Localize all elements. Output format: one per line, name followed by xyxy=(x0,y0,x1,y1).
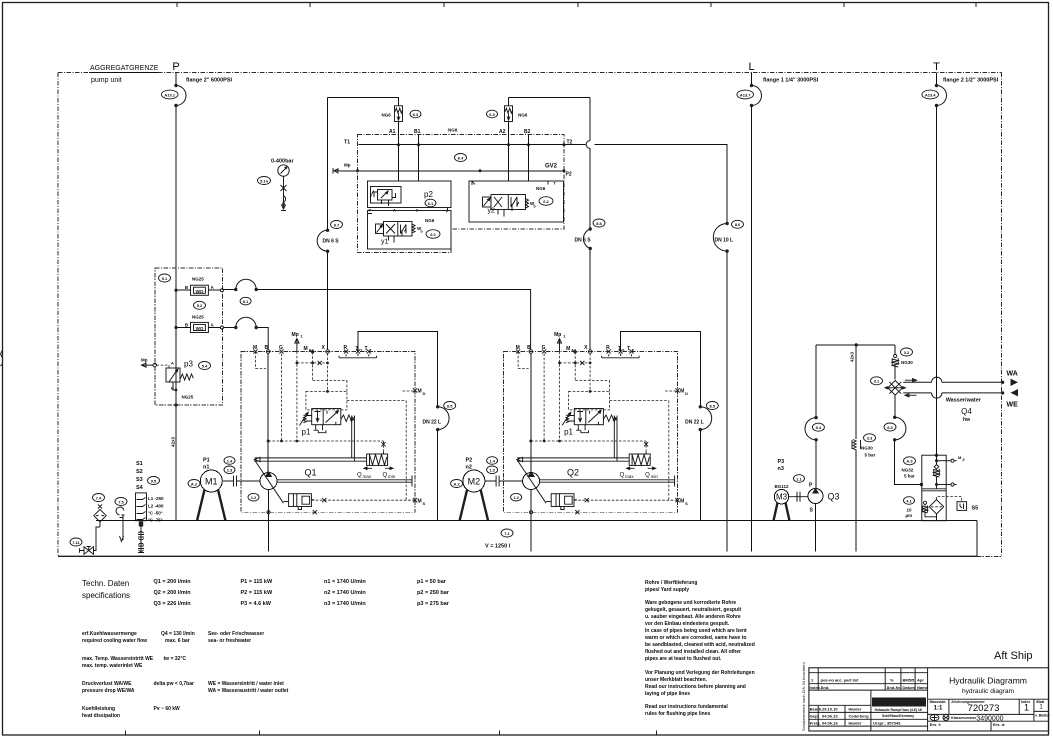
svg-text:Gebaude Rumpf bau (4.6) 18: Gebaude Rumpf bau (4.6) 18 xyxy=(875,708,922,712)
svg-text:p3 = 275 bar: p3 = 275 bar xyxy=(417,601,450,607)
svg-text:NG30: NG30 xyxy=(861,446,873,451)
svg-text:Ers. d:: Ers. d: xyxy=(993,722,1005,727)
svg-text:Q2: Q2 xyxy=(567,468,579,478)
svg-text:S5: S5 xyxy=(972,506,979,512)
svg-text:P2: P2 xyxy=(566,172,572,178)
svg-text:10: 10 xyxy=(907,508,913,513)
svg-text:Q1: Q1 xyxy=(305,468,317,478)
svg-text:warm or which are corroded, sa: warm or which are corroded, same have to xyxy=(644,635,746,641)
svg-text:Ware gebogene und korrodierte: Ware gebogene und korrodierte Rohre xyxy=(645,600,736,606)
svg-text:max. temp. waterinlet WE: max. temp. waterinlet WE xyxy=(82,663,143,669)
svg-text:1:1: 1:1 xyxy=(934,706,943,712)
svg-text:S3: S3 xyxy=(136,477,143,483)
svg-text:gekugelt, gesauert, neutralisi: gekugelt, gesauert, neutralisiert, gespu… xyxy=(645,607,741,613)
svg-text:y1: y1 xyxy=(381,239,389,246)
svg-text:p2: p2 xyxy=(424,190,433,199)
svg-text:pipes/ Yard supply: pipes/ Yard supply xyxy=(645,587,689,593)
svg-text:A13.4: A13.4 xyxy=(925,92,936,97)
svg-text:Read our instructions fundamen: Read our instructions fundamental xyxy=(645,704,728,710)
svg-text:be sandblasted, cleaned with a: be sandblasted, cleaned with acid, neutr… xyxy=(645,642,755,648)
svg-text:y2: y2 xyxy=(488,208,496,215)
svg-text:GV2: GV2 xyxy=(545,164,558,170)
svg-text:M3: M3 xyxy=(776,493,788,502)
svg-text:Hydraulik Diagramm: Hydraulik Diagramm xyxy=(949,676,1027,686)
svg-text:pressure drop WE/WA: pressure drop WE/WA xyxy=(82,688,135,694)
svg-text:n2: n2 xyxy=(466,465,472,471)
svg-text:NG30: NG30 xyxy=(901,360,913,365)
svg-text:42x3: 42x3 xyxy=(171,436,176,447)
svg-text:NG25: NG25 xyxy=(192,277,204,282)
svg-text:laying of pipe lines: laying of pipe lines xyxy=(645,691,690,697)
svg-text:P1 = 115 kW: P1 = 115 kW xyxy=(241,579,273,585)
svg-text:6.3: 6.3 xyxy=(489,112,495,117)
svg-text:erf.Kuehlwassermenge: erf.Kuehlwassermenge xyxy=(82,631,137,637)
svg-text:flange 2 1/2" 3000PSI: flange 2 1/2" 3000PSI xyxy=(943,78,999,84)
svg-text:Harder: Harder xyxy=(849,707,862,712)
svg-text:Q2 = 200 l/min: Q2 = 200 l/min xyxy=(154,590,192,596)
svg-text:NG25: NG25 xyxy=(192,314,204,319)
svg-text:6.3: 6.3 xyxy=(413,112,419,117)
svg-text:M1: M1 xyxy=(205,477,218,487)
svg-text:Q3 = 226 l/min: Q3 = 226 l/min xyxy=(154,601,192,607)
svg-text:7.11: 7.11 xyxy=(72,540,80,545)
svg-text:9.5: 9.5 xyxy=(151,478,157,483)
svg-text:L: L xyxy=(748,61,754,73)
svg-text:8.4: 8.4 xyxy=(816,425,822,430)
svg-text:n1 = 1740 U/min: n1 = 1740 U/min xyxy=(324,579,366,585)
svg-text:M2: M2 xyxy=(468,477,481,487)
svg-text:A13.7: A13.7 xyxy=(740,92,751,97)
svg-text:µm: µm xyxy=(906,513,913,518)
svg-text:A: A xyxy=(393,208,396,213)
svg-text:hydraulic diagram: hydraulic diagram xyxy=(962,688,1015,695)
svg-text:See- oder Frischwasser: See- oder Frischwasser xyxy=(208,631,264,637)
svg-text:rules for flushing pipe lines: rules for flushing pipe lines xyxy=(645,711,711,717)
svg-text:BM5/5: BM5/5 xyxy=(903,678,916,683)
svg-text:6.4: 6.4 xyxy=(458,155,464,160)
svg-text:n3: n3 xyxy=(778,466,784,472)
svg-text:n2 = 1740 U/min: n2 = 1740 U/min xyxy=(324,590,366,596)
svg-text:P: P xyxy=(369,208,372,213)
svg-text:NG6: NG6 xyxy=(536,186,546,191)
svg-text:WA: WA xyxy=(1007,371,1018,378)
svg-text:b: b xyxy=(421,230,423,234)
svg-text:NG6: NG6 xyxy=(518,113,528,118)
svg-text:Pv ~ 60 kW: Pv ~ 60 kW xyxy=(154,706,181,712)
svg-text:pump unit: pump unit xyxy=(91,77,122,84)
svg-text:Urspr.: 357343: Urspr.: 357343 xyxy=(873,720,901,725)
svg-text:Ers. f:: Ers. f: xyxy=(930,722,941,727)
svg-text:Apr: Apr xyxy=(917,678,924,683)
svg-text:NG25: NG25 xyxy=(182,395,194,400)
svg-text:NG6: NG6 xyxy=(448,128,458,133)
svg-text:Blatt: Blatt xyxy=(1036,700,1045,704)
svg-text:BG112: BG112 xyxy=(775,484,790,489)
svg-text:NG32: NG32 xyxy=(902,468,914,473)
svg-text:8.7: 8.7 xyxy=(334,222,340,227)
svg-text:04.06.13: 04.06.13 xyxy=(822,714,838,719)
svg-text:Schiffbau/Germany: Schiffbau/Germany xyxy=(882,714,914,718)
svg-text:pos-no acc. part list: pos-no acc. part list xyxy=(821,678,859,683)
svg-text:AGGREGATGRENZE: AGGREGATGRENZE xyxy=(90,65,159,72)
svg-text:Vor Planung und Verlegung der: Vor Planung und Verlegung der Rohrleitun… xyxy=(645,670,755,676)
svg-text:L2 -400: L2 -400 xyxy=(148,504,164,509)
svg-text:A: A xyxy=(171,361,174,366)
svg-text:Aft Ship: Aft Ship xyxy=(994,650,1033,662)
svg-text:WE: WE xyxy=(1007,402,1019,409)
svg-text:8.3: 8.3 xyxy=(887,425,893,430)
svg-text:P2 = 115 kW: P2 = 115 kW xyxy=(241,590,273,596)
svg-text:Mp: Mp xyxy=(141,358,148,363)
svg-text:WA = Wasseraustritt / water ou: WA = Wasseraustritt / water outlet xyxy=(208,688,289,694)
svg-text:DN 6 S: DN 6 S xyxy=(575,238,592,244)
svg-text:2.1: 2.1 xyxy=(796,476,802,481)
svg-text:Massstab: Massstab xyxy=(930,700,946,704)
svg-text:5.14: 5.14 xyxy=(260,178,269,183)
svg-text:Cederberg: Cederberg xyxy=(849,714,870,719)
svg-text:S2: S2 xyxy=(136,469,143,475)
svg-text:4.1: 4.1 xyxy=(906,498,912,503)
svg-text:V = 1250 l: V = 1250 l xyxy=(485,544,511,550)
svg-text:delta pw < 0,7bar: delta pw < 0,7bar xyxy=(154,681,194,687)
svg-text:P: P xyxy=(172,61,179,73)
svg-text:Datum: Datum xyxy=(903,685,916,690)
svg-text:Read our instructions before p: Read our instructions before planning an… xyxy=(645,684,746,690)
svg-text:S4: S4 xyxy=(136,485,144,491)
svg-text:Name: Name xyxy=(917,685,929,690)
svg-text:flushed out and installed clea: flushed out and installed clean. All oth… xyxy=(645,649,741,655)
svg-text:required cooling water flow: required cooling water flow xyxy=(82,638,147,644)
svg-text:P2: P2 xyxy=(466,458,473,464)
svg-text:0-400bar: 0-400bar xyxy=(271,159,294,165)
svg-text:max. 6 bar: max. 6 bar xyxy=(165,638,190,644)
svg-text:7.1: 7.1 xyxy=(504,531,510,536)
svg-text:WO: WO xyxy=(196,326,204,331)
svg-text:Freig.: Freig. xyxy=(810,720,821,725)
svg-text:6.2: 6.2 xyxy=(430,232,436,237)
svg-text:L1 -250: L1 -250 xyxy=(148,496,164,501)
svg-text:vor den Einbau eindestens gesp: vor den Einbau eindestens gespult. xyxy=(645,621,730,627)
svg-text:Rohre / Werftlieferung: Rohre / Werftlieferung xyxy=(645,580,697,586)
svg-text:DN 10 L: DN 10 L xyxy=(715,238,734,244)
svg-text:WE = Wassereintritt / water in: WE = Wassereintritt / water inlet xyxy=(208,681,284,687)
svg-text:b: b xyxy=(534,205,536,209)
svg-text:sea- or freshwater: sea- or freshwater xyxy=(208,638,251,644)
svg-text:max. Temp. Wassereintritt WE: max. Temp. Wassereintritt WE xyxy=(82,656,154,662)
svg-text:Kuehlleistung: Kuehlleistung xyxy=(82,706,115,712)
svg-text:Änd-Nr.: Änd-Nr. xyxy=(887,685,901,690)
svg-text:A.3: A.3 xyxy=(906,459,913,464)
svg-text:T1: T1 xyxy=(344,140,350,146)
svg-text:u. sauber eingebaut. Alle ande: u. sauber eingebaut. Alle anderen Rohre xyxy=(645,614,741,620)
svg-text:n3 = 1740 U/min: n3 = 1740 U/min xyxy=(324,601,366,607)
svg-text:Index: Index xyxy=(810,685,821,690)
svg-text:P3: P3 xyxy=(778,459,785,465)
svg-text:WO: WO xyxy=(196,289,204,294)
svg-text:Druckverlust WA/WE: Druckverlust WA/WE xyxy=(82,681,132,687)
svg-text:6.1: 6.1 xyxy=(428,201,434,206)
svg-text:Q1 = 200 l/min: Q1 = 200 l/min xyxy=(154,579,192,585)
svg-text:8.1: 8.1 xyxy=(243,299,249,304)
svg-text:Techn. Daten: Techn. Daten xyxy=(82,579,129,588)
svg-text:7.5: 7.5 xyxy=(118,499,124,504)
svg-text:7.4: 7.4 xyxy=(96,495,102,500)
svg-text:p2 = 250 bar: p2 = 250 bar xyxy=(417,590,450,596)
svg-text:P3 = 4.6 kW: P3 = 4.6 kW xyxy=(241,601,272,607)
svg-text:3.1: 3.1 xyxy=(874,379,880,384)
svg-text:1: 1 xyxy=(1024,703,1029,713)
svg-text:Q4 = 130 l/min: Q4 = 130 l/min xyxy=(161,631,195,637)
svg-text:v. Blatter: v. Blatter xyxy=(1035,714,1050,718)
svg-text:Q4: Q4 xyxy=(961,407,972,416)
svg-text:Wasser/water: Wasser/water xyxy=(946,398,982,404)
svg-text:5.2: 5.2 xyxy=(197,303,203,308)
svg-text:Gepr.: Gepr. xyxy=(810,714,820,719)
svg-text:p1 = 50 bar: p1 = 50 bar xyxy=(417,579,447,585)
svg-text:42x3: 42x3 xyxy=(850,351,855,362)
svg-text:Bearb.: Bearb. xyxy=(810,707,822,712)
svg-text:3.2: 3.2 xyxy=(904,350,910,355)
svg-text:29.10.10: 29.10.10 xyxy=(822,707,838,712)
svg-text:8.8: 8.8 xyxy=(596,221,602,226)
svg-text:flange 1 1/4" 3000PSI: flange 1 1/4" 3000PSI xyxy=(763,78,819,84)
svg-text:tw = 32°C: tw = 32°C xyxy=(164,656,187,662)
svg-text:720273: 720273 xyxy=(967,703,999,714)
svg-text:Q3: Q3 xyxy=(828,492,840,502)
svg-text:unser Merkblatt beachten.: unser Merkblatt beachten. xyxy=(645,677,708,683)
svg-text:p: p xyxy=(963,458,965,462)
svg-text:specifications: specifications xyxy=(82,591,130,600)
svg-text:8.6: 8.6 xyxy=(735,222,741,227)
svg-text:S1: S1 xyxy=(136,461,143,467)
svg-text:NG6: NG6 xyxy=(425,218,435,223)
svg-text:3.3: 3.3 xyxy=(867,436,873,441)
svg-text:°C -50°: °C -50° xyxy=(148,511,163,516)
svg-text:5.4: 5.4 xyxy=(202,363,208,368)
svg-text:A13.1: A13.1 xyxy=(164,92,175,97)
svg-text:5.1: 5.1 xyxy=(162,276,168,281)
svg-text:P1: P1 xyxy=(203,458,210,464)
svg-text:hw: hw xyxy=(963,417,970,423)
svg-text:NG6: NG6 xyxy=(382,113,392,118)
svg-text:Harder: Harder xyxy=(849,720,862,725)
svg-text:pipes are at least to flushed: pipes are at least to flushed out. xyxy=(645,656,722,662)
svg-text:T: T xyxy=(933,61,940,73)
svg-text:Schutzvermerk nach DIN 34 beac: Schutzvermerk nach DIN 34 beachten! xyxy=(801,662,806,731)
svg-text:°C -75°: °C -75° xyxy=(148,518,163,523)
svg-text:04.06.13: 04.06.13 xyxy=(822,720,838,725)
svg-text:In case of pipes being used wh: In case of pipes being used which are be… xyxy=(645,628,747,634)
svg-text:DN 6 S: DN 6 S xyxy=(323,239,340,245)
svg-text:5 bar: 5 bar xyxy=(904,474,915,479)
svg-text:5 bar: 5 bar xyxy=(865,453,876,458)
svg-text:%: % xyxy=(890,678,894,683)
svg-text:Änd.: Änd. xyxy=(821,685,830,690)
svg-text:p3: p3 xyxy=(184,360,193,369)
svg-text:heat dissipation: heat dissipation xyxy=(82,713,120,719)
svg-text:6.2: 6.2 xyxy=(543,199,549,204)
svg-text:flange 2" 6000PSI: flange 2" 6000PSI xyxy=(186,78,232,84)
svg-text:Klassenummer: Klassenummer xyxy=(951,716,977,720)
svg-text:Mp: Mp xyxy=(344,163,351,168)
svg-text:n1: n1 xyxy=(203,465,209,471)
